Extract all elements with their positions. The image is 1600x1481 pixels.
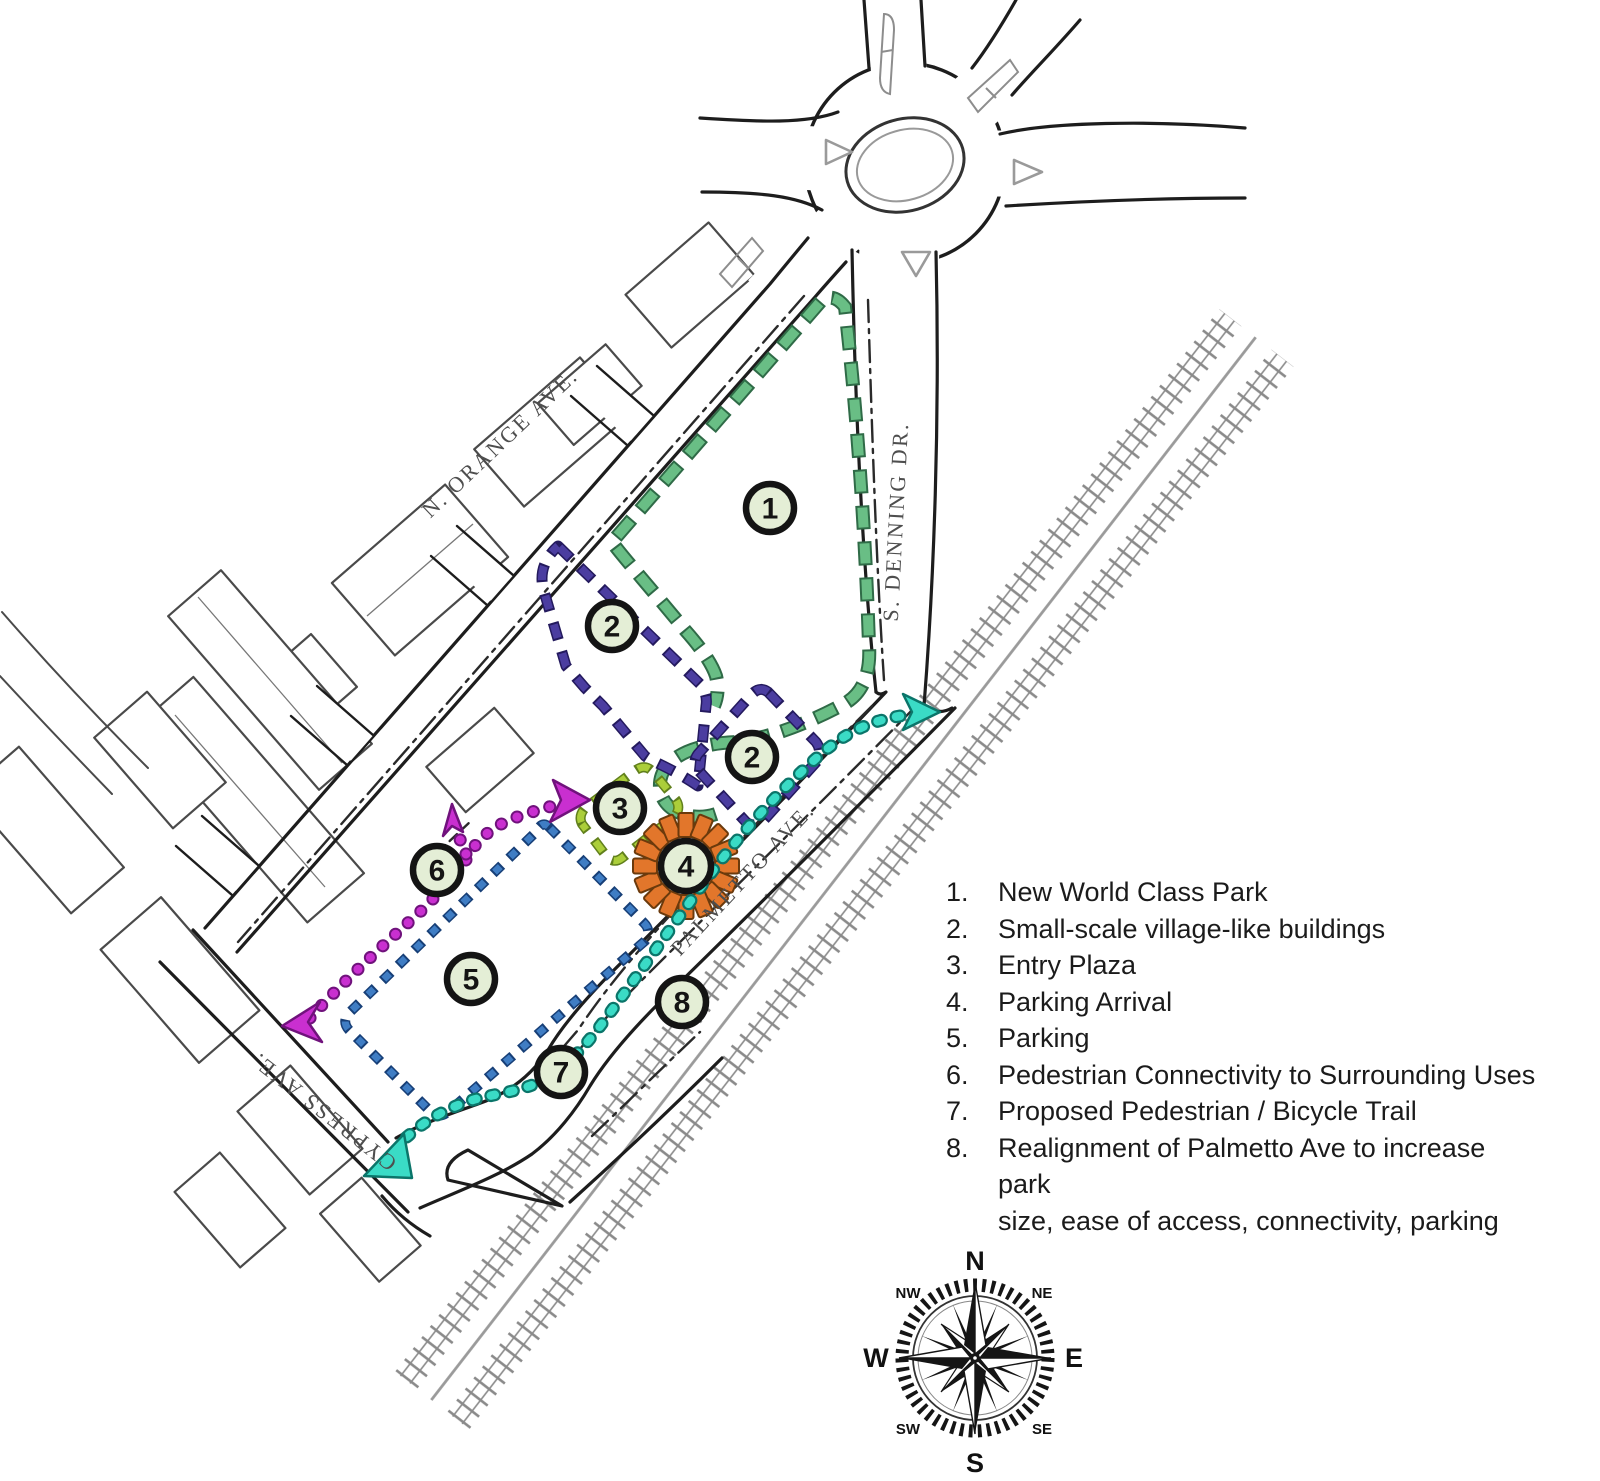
legend: 1. New World Class Park 2. Small-scale v… <box>946 874 1546 1239</box>
compass-n: N <box>965 1246 985 1276</box>
badge-2-upper: 2 <box>588 602 636 650</box>
badge-3: 3 <box>596 784 644 832</box>
site-plan-map: N. ORANGE AVE. S. DENNING DR. PALMETTO A… <box>0 0 1600 1481</box>
badge-8: 8 <box>658 978 706 1026</box>
compass-rose: N S E W NE NW SE SW <box>863 1246 1083 1478</box>
legend-item-7: 7. Proposed Pedestrian / Bicycle Trail <box>946 1093 1546 1130</box>
svg-text:8: 8 <box>674 987 691 1020</box>
legend-item-6: 6. Pedestrian Connectivity to Surroundin… <box>946 1057 1546 1094</box>
svg-text:2: 2 <box>744 742 761 775</box>
compass-ne: NE <box>1032 1285 1053 1302</box>
compass-e: E <box>1065 1343 1083 1373</box>
parking-area-boundary <box>345 824 648 1115</box>
legend-item-5: 5. Parking <box>946 1020 1546 1057</box>
compass-se: SE <box>1032 1421 1052 1438</box>
legend-item-8: 8. Realignment of Palmetto Ave to increa… <box>946 1130 1546 1240</box>
legend-item-4: 4. Parking Arrival <box>946 984 1546 1021</box>
legend-item-1: 1. New World Class Park <box>946 874 1546 911</box>
badge-2-lower: 2 <box>728 733 776 781</box>
svg-text:1: 1 <box>762 493 779 526</box>
svg-text:6: 6 <box>429 855 446 888</box>
magenta-arrow-n <box>443 804 463 836</box>
legend-item-3: 3. Entry Plaza <box>946 947 1546 984</box>
magenta-arrow-sw <box>282 1002 322 1042</box>
pedestrian-connectivity-route <box>282 780 590 1042</box>
badge-6: 6 <box>413 846 461 894</box>
compass-nw: NW <box>896 1285 922 1302</box>
badge-5: 5 <box>447 955 495 1003</box>
site-plan-page: N. ORANGE AVE. S. DENNING DR. PALMETTO A… <box>0 0 1600 1481</box>
street-label-denning: S. DENNING DR. <box>878 421 913 622</box>
compass-s: S <box>966 1448 984 1478</box>
svg-text:3: 3 <box>612 793 629 826</box>
svg-text:5: 5 <box>463 964 480 997</box>
badge-4: 4 <box>661 841 711 891</box>
svg-text:7: 7 <box>553 1057 570 1090</box>
badge-1: 1 <box>746 484 794 532</box>
compass-sw: SW <box>896 1421 921 1438</box>
compass-w: W <box>863 1343 889 1373</box>
legend-item-2: 2. Small-scale village-like buildings <box>946 911 1546 948</box>
badge-7: 7 <box>537 1048 585 1096</box>
roundabout <box>688 0 1255 305</box>
denning-e-edge <box>924 252 952 712</box>
svg-text:2: 2 <box>604 611 621 644</box>
svg-text:4: 4 <box>678 851 695 884</box>
